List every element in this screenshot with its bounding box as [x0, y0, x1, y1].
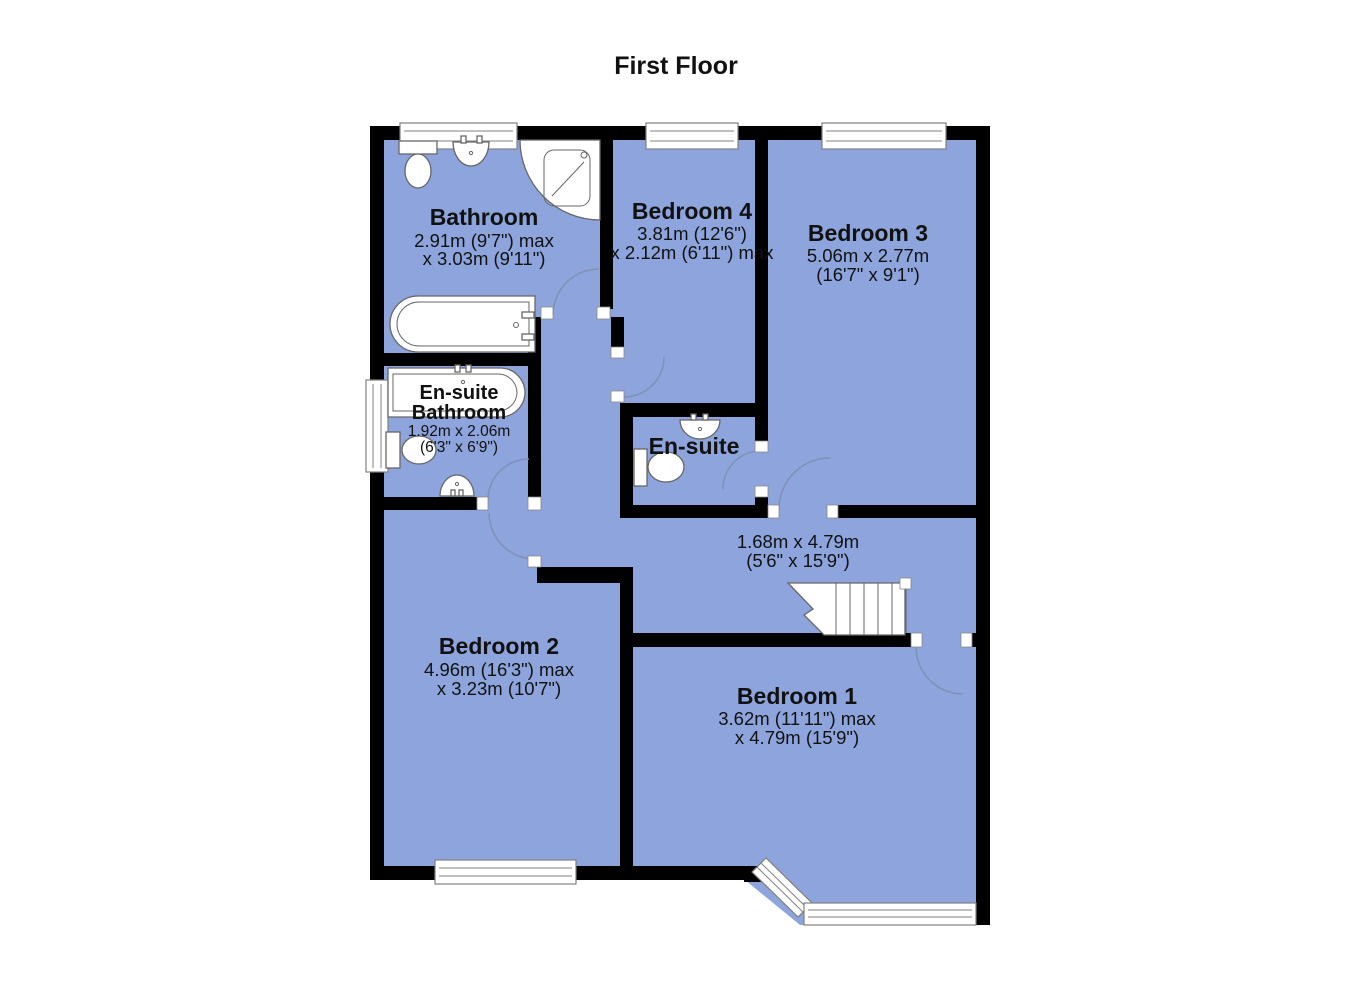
room-dimensions: 1.68m x 4.79m	[737, 531, 859, 552]
room-dimensions: (16'7" x 9'1")	[816, 264, 920, 285]
room-label-bedroom3: Bedroom 3 5.06m x 2.77m (16'7" x 9'1")	[807, 220, 929, 285]
door-jamb	[611, 347, 624, 358]
wall-left	[370, 126, 384, 880]
wall-right	[976, 126, 990, 925]
room-name: Bedroom 1	[737, 683, 857, 709]
window-ensuitebath-left	[366, 380, 388, 472]
room-name: Bathroom	[430, 204, 539, 230]
room-dimensions: 4.96m (16'3") max	[424, 659, 575, 680]
door-jamb	[911, 633, 922, 647]
room-label-landing: 1.68m x 4.79m (5'6" x 15'9")	[737, 531, 859, 571]
room-dimensions: 1.92m x 2.06m	[408, 423, 511, 440]
floor-plan-page: First Floor	[0, 0, 1350, 982]
door-jamb	[755, 441, 768, 452]
room-name: En-suite	[420, 382, 499, 404]
room-name: Bedroom 4	[632, 198, 752, 224]
wall-hall-top-right	[838, 505, 976, 518]
door-jamb	[961, 633, 972, 647]
door-jamb	[528, 497, 541, 510]
room-name: Bathroom	[412, 402, 506, 424]
room-dimensions: x 3.03m (9'11")	[423, 248, 546, 269]
bathtub-icon	[390, 296, 535, 352]
room-dimensions: 5.06m x 2.77m	[807, 245, 929, 266]
window-bay-bottom	[804, 903, 976, 925]
room-label-ensuite: En-suite	[649, 433, 740, 459]
room-name: En-suite	[649, 433, 740, 459]
room-label-bedroom2: Bedroom 2 4.96m (16'3") max x 3.23m (10'…	[424, 633, 575, 699]
wall-bedroom4-left	[611, 317, 624, 347]
room-label-bathroom: Bathroom 2.91m (9'7") max x 3.03m (9'11"…	[414, 204, 554, 269]
room-dimensions: x 4.79m (15'9")	[735, 727, 859, 748]
wall-hall-top-left	[620, 505, 768, 518]
room-dimensions: (6'3" x 6'9")	[420, 439, 498, 456]
wall-ensuitebath-bottom	[384, 497, 477, 510]
room-dimensions: 3.62m (11'11") max	[718, 708, 876, 729]
room-label-bedroom1: Bedroom 1 3.62m (11'11") max x 4.79m (15…	[718, 683, 876, 748]
wall-hall-bottom-right	[972, 633, 976, 647]
room-name: Bedroom 3	[808, 220, 928, 246]
floor-plan-canvas: First Floor	[0, 0, 1350, 982]
door-jamb	[755, 486, 768, 497]
room-name: Bedroom 2	[439, 633, 559, 659]
room-label-ensuite-bathroom: En-suite Bathroom 1.92m x 2.06m (6'3" x …	[408, 382, 511, 456]
window-bedroom4-top	[646, 123, 738, 149]
wall-bathroom-bottom	[384, 353, 534, 366]
stairs-newel-post	[900, 578, 911, 589]
window-bedroom3-top	[822, 123, 946, 149]
wall-bedroom1-bedroom2	[620, 567, 633, 866]
room-dimensions: x 3.23m (10'7")	[437, 678, 561, 699]
wall-bathroom-right	[600, 140, 613, 309]
room-dimensions: x 2.12m (6'11") max	[611, 242, 775, 263]
wall-ensuite-left	[620, 403, 633, 505]
room-dimensions: (5'6" x 15'9")	[746, 550, 850, 571]
door-jamb	[541, 307, 553, 319]
wall-bedroom2-top	[537, 567, 633, 583]
door-jamb	[768, 505, 779, 518]
wall-ensuite-top	[620, 403, 755, 417]
door-jamb	[827, 505, 838, 518]
door-jamb	[528, 556, 541, 567]
room-dimensions: 3.81m (12'6")	[637, 223, 747, 244]
page-title: First Floor	[614, 52, 738, 80]
door-jamb	[477, 497, 488, 510]
window-bedroom2-bottom	[435, 860, 576, 884]
wall-bedroom4-right	[755, 140, 768, 441]
door-jamb	[597, 307, 610, 319]
door-jamb	[611, 391, 624, 402]
